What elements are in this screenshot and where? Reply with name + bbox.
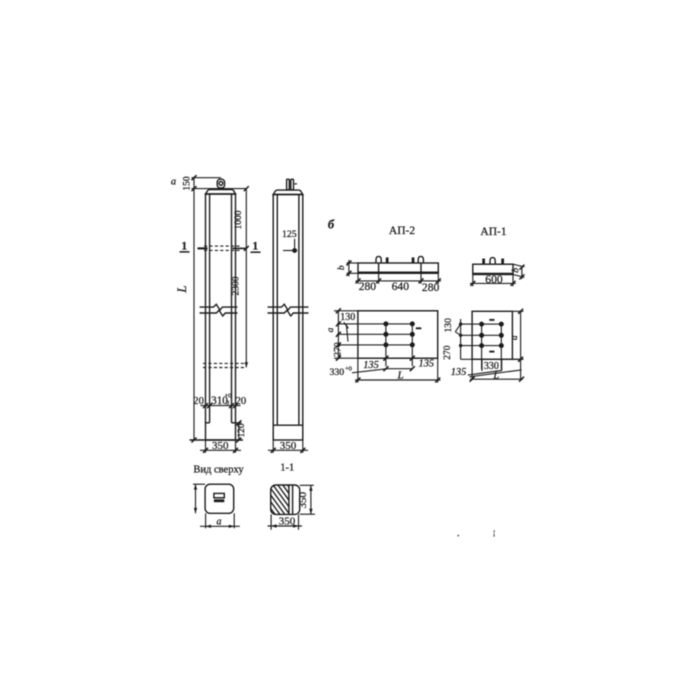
svg-text:a: a (217, 517, 222, 528)
svg-text:600: 600 (485, 273, 503, 286)
svg-text:350: 350 (280, 440, 297, 452)
svg-text:130: 130 (340, 312, 355, 323)
svg-text:280: 280 (422, 281, 440, 294)
svg-text:a: a (171, 177, 176, 188)
svg-text:270: 270 (442, 345, 453, 360)
svg-text:350: 350 (297, 492, 309, 509)
svg-text:L: L (397, 370, 404, 382)
svg-text:120: 120 (237, 423, 247, 437)
svg-text:350: 350 (212, 440, 229, 452)
svg-text:150: 150 (183, 176, 193, 191)
svg-text:L: L (492, 370, 499, 381)
svg-text:1: 1 (252, 241, 258, 253)
svg-text:640: 640 (392, 280, 410, 293)
svg-text:L: L (174, 285, 189, 293)
svg-text:135: 135 (451, 367, 467, 378)
svg-text:350: 350 (279, 515, 296, 527)
svg-text:+0: +0 (225, 393, 232, 400)
svg-text:b: b (337, 265, 347, 270)
svg-text:АП-2: АП-2 (389, 225, 415, 237)
svg-text:135: 135 (363, 360, 379, 371)
svg-text:130: 130 (443, 318, 454, 333)
svg-text:280: 280 (359, 280, 377, 293)
svg-text:a: a (510, 335, 520, 340)
svg-text:330: 330 (329, 367, 344, 378)
svg-text:1-1: 1-1 (280, 462, 294, 473)
svg-text:1: 1 (181, 240, 187, 252)
svg-text:Вид сверху: Вид сверху (193, 464, 244, 475)
svg-text:125: 125 (282, 229, 297, 240)
svg-text:б: б (328, 218, 335, 232)
svg-text:270: 270 (333, 342, 344, 357)
svg-text:+0: +0 (345, 366, 352, 373)
svg-text:2300: 2300 (232, 276, 242, 295)
svg-text:a: a (326, 327, 336, 332)
svg-text:1000: 1000 (234, 210, 244, 229)
svg-text:АП-1: АП-1 (480, 226, 506, 238)
svg-text:135: 135 (419, 358, 435, 369)
